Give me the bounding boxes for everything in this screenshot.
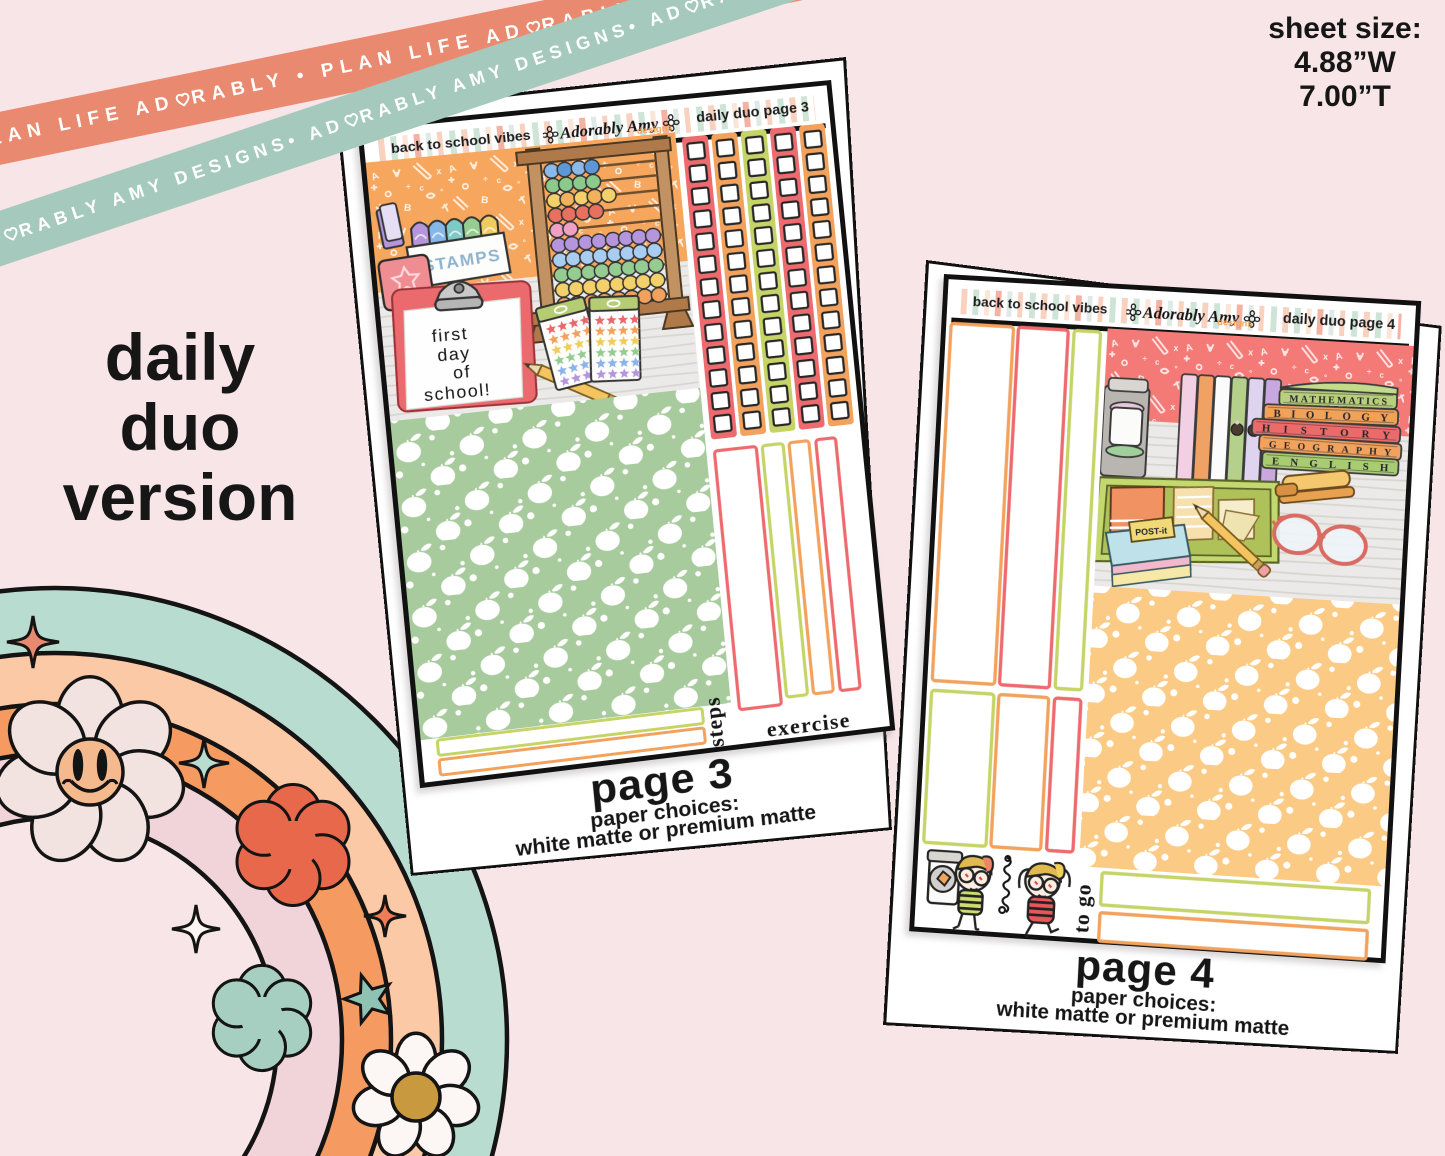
svg-text:of: of <box>452 362 471 383</box>
svg-text:steps: steps <box>699 695 729 748</box>
svg-text:POST-it: POST-it <box>1135 525 1168 537</box>
svg-text:to go: to go <box>1069 883 1096 934</box>
svg-text:exercise: exercise <box>766 708 852 742</box>
